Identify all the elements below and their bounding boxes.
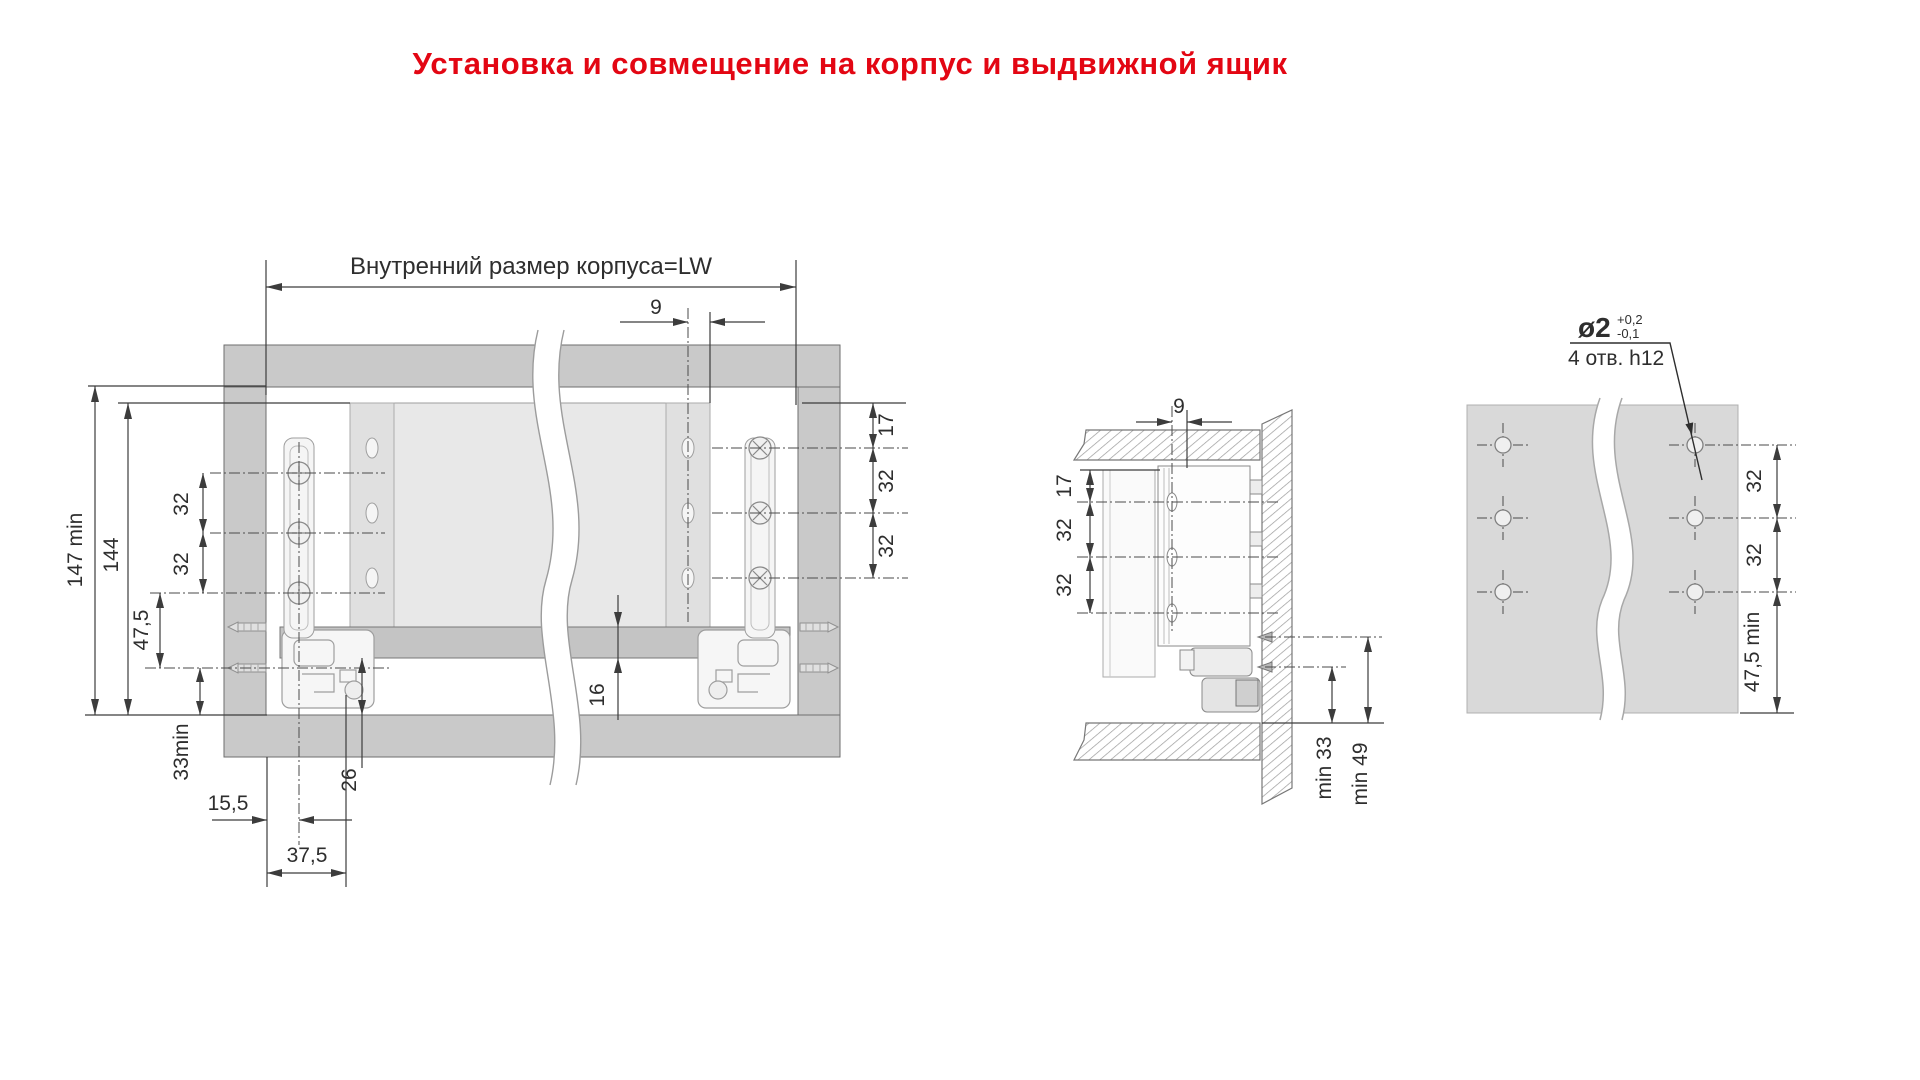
dim-label-37-5: 37,5 [287,844,328,867]
dim-label-32-mid: 32 [1053,518,1076,541]
dim-label-32-right-bottom: 32 [875,534,898,557]
right-rail [745,437,775,638]
dim-label-147min: 147 min [64,513,87,588]
dim-label-17: 17 [875,413,898,436]
dim-label-47-5: 47,5 [130,610,153,651]
dim-label-33min: 33min [170,723,193,780]
front-view-drawing: Внутренний размер корпуса=LW 9 17 32 32 … [60,190,980,890]
dim-label-32-low: 32 [1053,573,1076,596]
page-title: Установка и совмещение на корпус и выдви… [170,46,1530,82]
dim-label-144: 144 [100,537,123,572]
dim-label-16: 16 [586,683,609,706]
dim-label-min33: min 33 [1313,736,1336,799]
slide-mechanism [1180,648,1260,712]
dim-label-9: 9 [1173,395,1185,418]
callout-note: 4 отв. h12 [1568,347,1664,370]
dim-label-min49: min 49 [1349,742,1372,805]
callout-diameter: ø2 [1578,312,1611,343]
dim-label-32-bottom: 32 [1743,543,1766,566]
dim-label-32-left-top: 32 [170,492,193,515]
drawer-side-section [1103,466,1272,712]
corner-bracket-right [698,630,790,708]
callout-tol-minus: -0,1 [1617,326,1639,341]
dim-label-32-right-top: 32 [875,469,898,492]
dim-label-17: 17 [1053,474,1076,497]
dim-label-47-5-min: 47,5 min [1741,612,1764,693]
drawer-back-panel [350,403,710,627]
drill-template-drawing: ø2 +0,2 -0,1 4 отв. h12 32 32 47,5 min [1450,280,1870,740]
dim-label-32-left-bottom: 32 [170,552,193,575]
section-view-drawing: 9 17 32 32 min 33 min 49 [1040,380,1420,820]
dim-label-26: 26 [338,768,361,791]
lw-dimension-label: Внутренний размер корпуса=LW [350,253,712,280]
callout-tol-plus: +0,2 [1617,312,1643,327]
dim-label-15-5: 15,5 [208,792,249,815]
page: { "title": "Установка и совмещение на ко… [0,0,1920,1080]
dim-label-9: 9 [650,296,662,319]
dim-label-32-top: 32 [1743,469,1766,492]
